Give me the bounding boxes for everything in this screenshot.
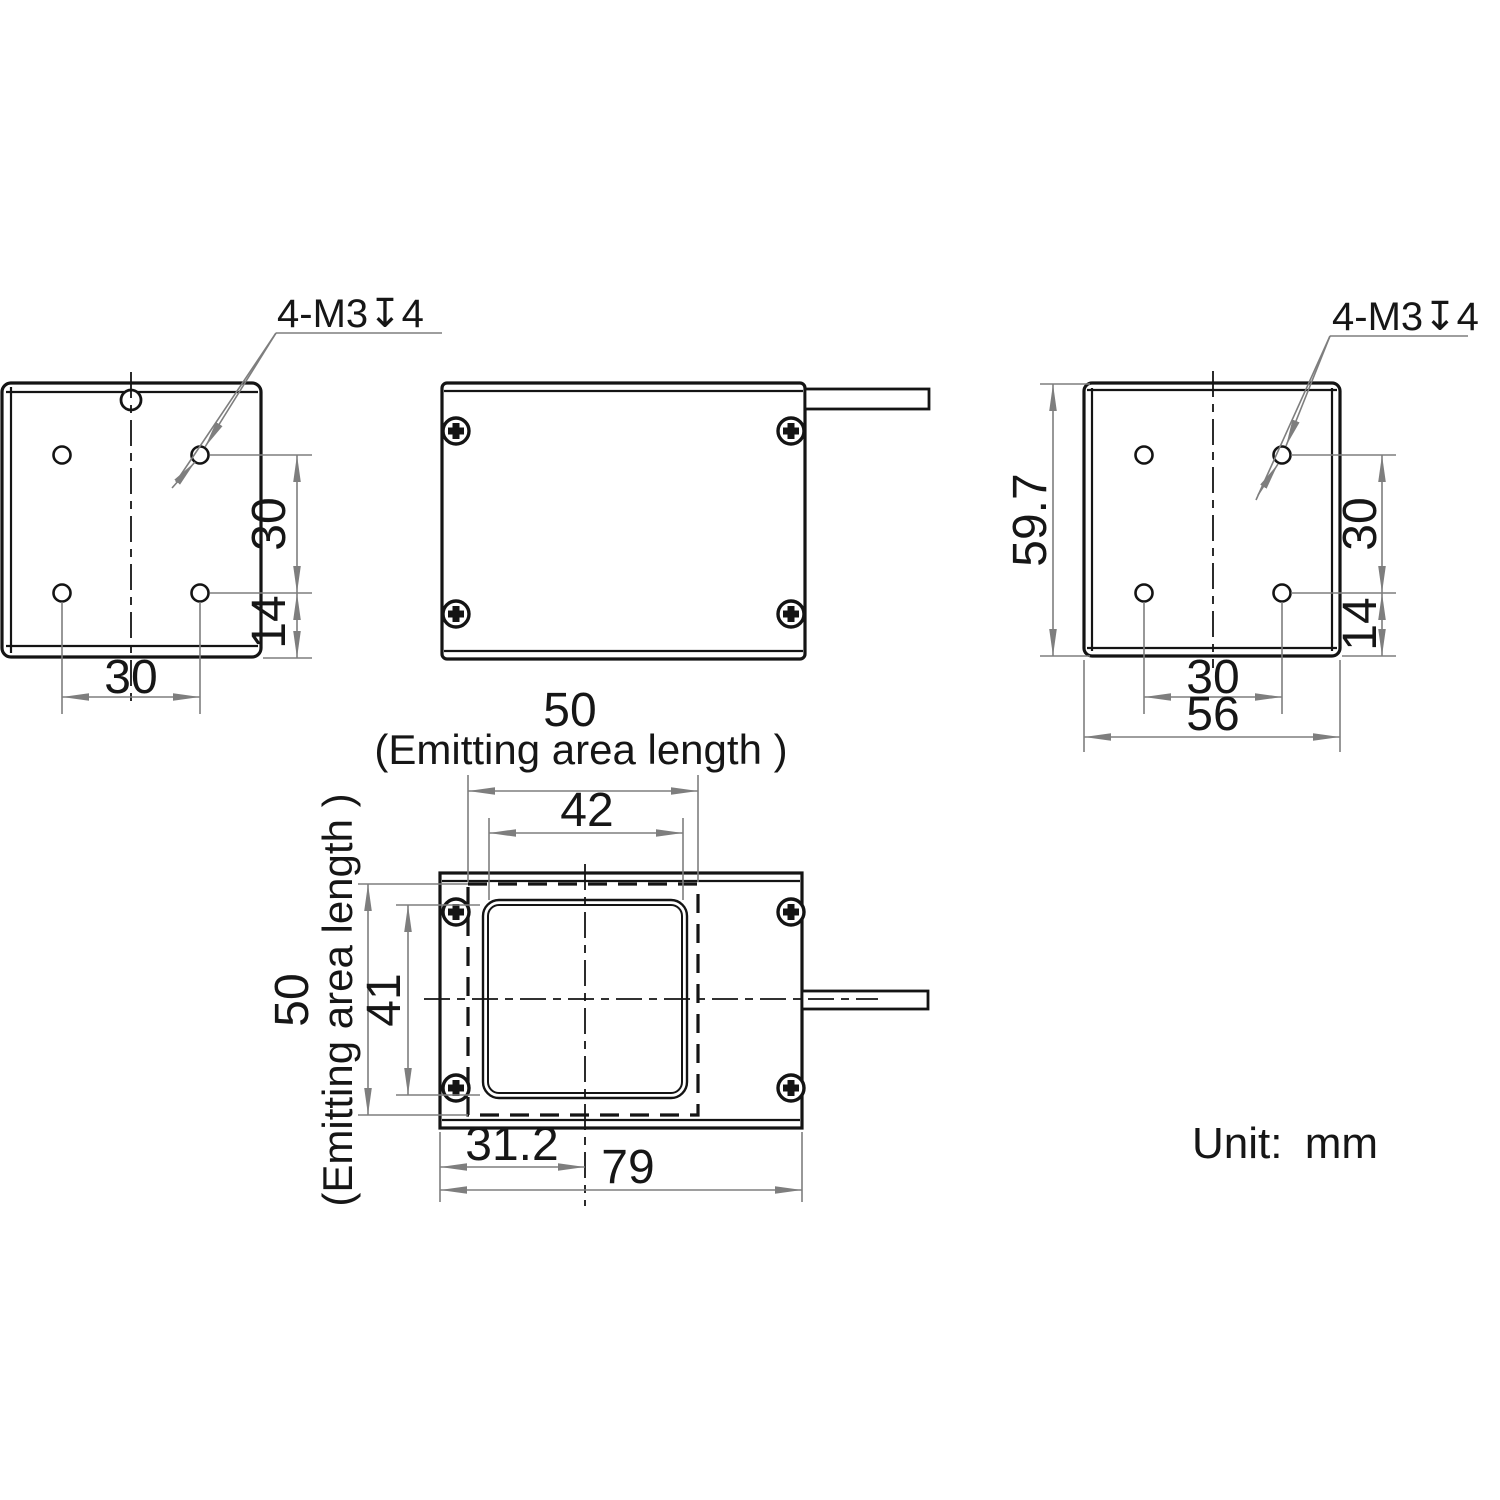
callout-leader: [1256, 336, 1330, 500]
view-top-center: [442, 383, 929, 659]
cable: [805, 389, 929, 409]
drawing-canvas: 4-M3↧4 30 14 30: [0, 0, 1500, 1500]
screw: [443, 1075, 469, 1101]
mount-hole: [192, 585, 209, 602]
thread-callout-label: 4-M3↧4: [277, 292, 424, 336]
screw: [778, 418, 804, 444]
view-left-side: 4-M3↧4 30 14 30: [2, 292, 442, 714]
dim-hole-pitch-v: 30: [243, 497, 296, 550]
screw: [778, 601, 804, 627]
screw: [443, 899, 469, 925]
screw: [443, 418, 469, 444]
center-view-body: [442, 383, 805, 659]
dim-center-offset: 31.2: [465, 1118, 558, 1171]
dim-window-height: 41: [358, 973, 411, 1026]
mount-hole: [1136, 447, 1153, 464]
callout-arrow: [172, 462, 195, 488]
mount-hole: [54, 447, 71, 464]
thread-callout-label: 4-M3↧4: [1332, 295, 1479, 339]
mount-hole: [1136, 585, 1153, 602]
dim-overall-width: 79: [601, 1141, 654, 1194]
view-right-side: 4-M3↧4 59.7 30 14 30 56: [1004, 295, 1479, 752]
right-view-body: [1084, 383, 1340, 656]
dim-hole-pitch-v: 30: [1334, 497, 1387, 550]
dim-hole-edge-offset: 14: [1334, 597, 1387, 650]
unit-note: Unit: mm: [1192, 1119, 1378, 1168]
callout-arrow: [205, 333, 276, 447]
dim-window-width: 42: [560, 784, 613, 837]
dim-overall-width: 56: [1186, 688, 1239, 741]
mount-hole: [1274, 585, 1291, 602]
screw: [778, 899, 804, 925]
screw: [443, 601, 469, 627]
dim-emitting-height: 50: [266, 973, 319, 1026]
view-front: 50 (Emitting area length ) 42 50 (Emitti…: [266, 684, 928, 1207]
mount-hole: [54, 585, 71, 602]
cable: [802, 991, 928, 1009]
screw: [778, 1075, 804, 1101]
dimension-drawing: 4-M3↧4 30 14 30: [0, 0, 1500, 1500]
front-view-body: [440, 873, 802, 1128]
emitting-height-note: (Emitting area length ): [314, 793, 361, 1206]
callout-arrow: [1258, 464, 1278, 495]
dim-hole-edge-offset: 14: [243, 595, 296, 648]
emitting-width-note: (Emitting area length ): [374, 726, 787, 773]
dim-hole-pitch-h: 30: [104, 651, 157, 704]
dim-overall-height: 59.7: [1004, 473, 1057, 566]
